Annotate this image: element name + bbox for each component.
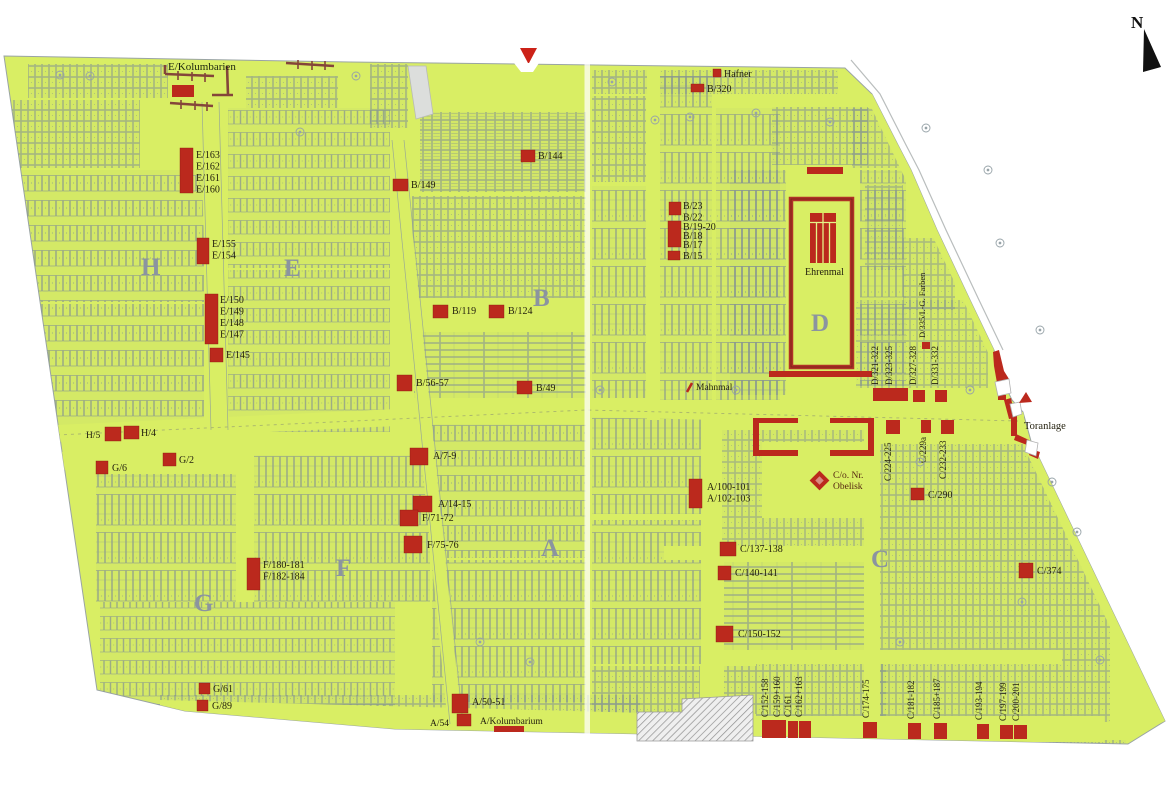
svg-text:B/149: B/149 <box>411 180 435 191</box>
svg-text:F/182-184: F/182-184 <box>263 572 305 583</box>
svg-text:G/2: G/2 <box>179 455 194 466</box>
svg-text:A/102-103: A/102-103 <box>707 494 750 505</box>
svg-text:D/323-325: D/323-325 <box>884 346 894 385</box>
svg-text:B/144: B/144 <box>538 151 562 162</box>
svg-text:C/290: C/290 <box>928 490 952 501</box>
svg-text:E/155: E/155 <box>212 239 236 250</box>
svg-text:C/o. Nr.: C/o. Nr. <box>833 471 863 481</box>
svg-text:D/327-328: D/327-328 <box>908 346 918 385</box>
svg-text:C/137-138: C/137-138 <box>740 544 783 555</box>
svg-text:Obelisk: Obelisk <box>833 482 863 492</box>
svg-text:C/174-175: C/174-175 <box>861 679 871 718</box>
svg-text:C/185+187: C/185+187 <box>932 678 942 719</box>
svg-text:C: C <box>871 546 889 573</box>
svg-text:E/161: E/161 <box>196 173 220 184</box>
svg-text:B/23: B/23 <box>683 201 702 212</box>
svg-text:E/150: E/150 <box>220 295 244 306</box>
svg-text:Toranlage: Toranlage <box>1024 421 1066 432</box>
svg-text:B/124: B/124 <box>508 306 532 317</box>
svg-text:E/160: E/160 <box>196 185 220 196</box>
svg-text:C/200-201: C/200-201 <box>1011 682 1021 721</box>
svg-text:A/Kolumbarium: A/Kolumbarium <box>480 717 543 727</box>
svg-text:C/232-233: C/232-233 <box>938 440 948 479</box>
svg-text:C/152-158: C/152-158 <box>760 678 770 717</box>
svg-text:Ehrenmal: Ehrenmal <box>805 267 844 278</box>
svg-text:G/89: G/89 <box>212 701 232 712</box>
svg-text:E/162: E/162 <box>196 162 220 173</box>
svg-text:F: F <box>336 555 351 582</box>
svg-text:N: N <box>1131 13 1144 32</box>
svg-text:E/163: E/163 <box>196 150 220 161</box>
svg-text:B: B <box>533 285 550 312</box>
svg-text:C/161: C/161 <box>783 695 793 717</box>
svg-text:B/15: B/15 <box>683 251 702 262</box>
svg-text:D/321-322: D/321-322 <box>870 346 880 385</box>
svg-text:B/119: B/119 <box>452 306 476 317</box>
svg-text:B/49: B/49 <box>536 383 555 394</box>
svg-text:E/145: E/145 <box>226 350 250 361</box>
svg-text:F/71-72: F/71-72 <box>422 513 454 524</box>
svg-text:C/193-194: C/193-194 <box>974 681 984 720</box>
svg-text:A/54: A/54 <box>430 719 449 729</box>
svg-text:A/14-15: A/14-15 <box>438 499 471 510</box>
svg-text:Hafner: Hafner <box>724 69 752 80</box>
svg-text:E/154: E/154 <box>212 251 236 262</box>
svg-text:C/150-152: C/150-152 <box>738 629 781 640</box>
svg-text:B/56-57: B/56-57 <box>416 378 449 389</box>
svg-text:C/224-225: C/224-225 <box>883 442 893 481</box>
svg-text:E/Kolumbarien: E/Kolumbarien <box>168 61 236 73</box>
svg-text:E/147: E/147 <box>220 330 244 341</box>
svg-text:A/50-51: A/50-51 <box>472 697 505 708</box>
svg-text:E/149: E/149 <box>220 307 244 318</box>
svg-text:C/181-182: C/181-182 <box>906 680 916 719</box>
svg-text:C/140-141: C/140-141 <box>735 568 778 579</box>
svg-text:A/100-101: A/100-101 <box>707 482 750 493</box>
svg-text:G: G <box>194 590 213 617</box>
svg-text:C/374: C/374 <box>1037 566 1061 577</box>
svg-text:C/197-199: C/197-199 <box>998 682 1008 721</box>
svg-text:G/61: G/61 <box>213 684 233 695</box>
svg-text:D/335/I.-G. Farben: D/335/I.-G. Farben <box>917 272 927 338</box>
svg-text:H/4: H/4 <box>141 428 156 439</box>
svg-text:E: E <box>284 255 301 282</box>
svg-text:F/75-76: F/75-76 <box>427 540 459 551</box>
svg-text:C/159+160: C/159+160 <box>772 676 782 717</box>
svg-text:D: D <box>811 310 829 337</box>
svg-text:H/5: H/5 <box>86 431 101 441</box>
svg-text:B/17: B/17 <box>683 240 702 251</box>
svg-text:C/162+163: C/162+163 <box>794 676 804 717</box>
svg-text:A/7-9: A/7-9 <box>433 451 456 462</box>
svg-text:E/148: E/148 <box>220 318 244 329</box>
svg-text:D/331-332: D/331-332 <box>930 346 940 385</box>
svg-text:Mahnmal: Mahnmal <box>696 383 733 393</box>
svg-text:H: H <box>141 254 161 281</box>
svg-text:F/180-181: F/180-181 <box>263 560 305 571</box>
svg-text:B/320: B/320 <box>707 84 731 95</box>
svg-text:A: A <box>541 535 559 562</box>
svg-text:G/6: G/6 <box>112 463 127 474</box>
